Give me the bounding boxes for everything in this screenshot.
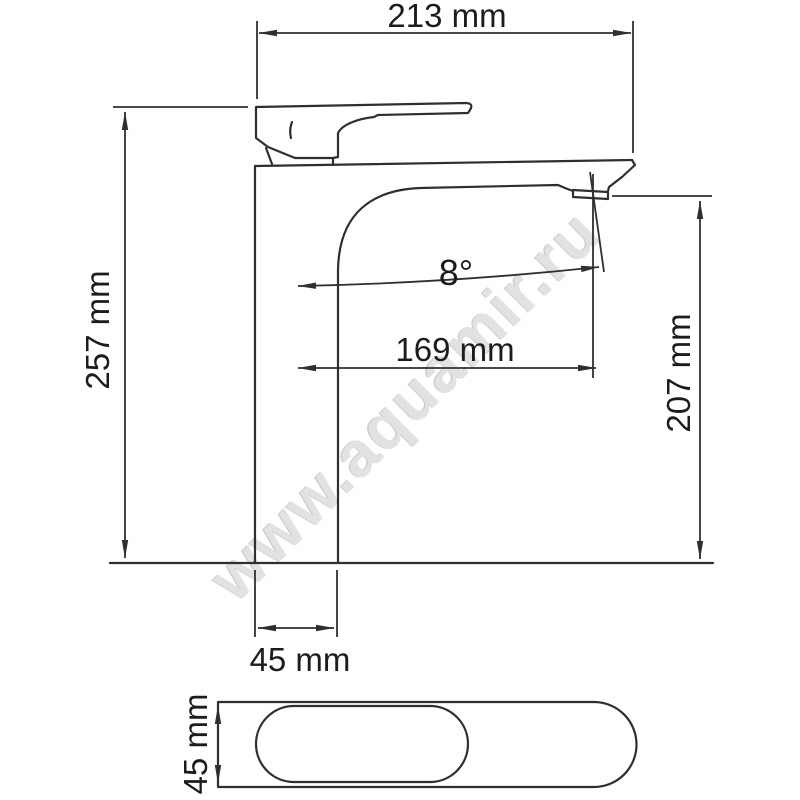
spout-underside	[420, 185, 573, 191]
dimension-label-spout-angle: 8°	[439, 252, 473, 293]
handle-crease-left	[266, 148, 272, 164]
dimension-outlet-height: 207 mm	[612, 196, 712, 559]
faucet-dimension-drawing: www.aquamir.ru	[0, 0, 800, 800]
aerator-outlet	[573, 190, 608, 199]
dimension-top-width: 213 mm	[257, 0, 633, 153]
dimension-annotations: 213 mm 257 mm 8° 169 mm	[79, 0, 712, 794]
dimension-label-top-width: 213 mm	[387, 0, 506, 34]
base-outer-outline	[218, 702, 637, 787]
handle-crease-front	[290, 122, 292, 138]
dimension-label-base-width: 45 mm	[177, 694, 214, 795]
dimension-overall-height: 257 mm	[79, 107, 248, 558]
base-inner-outline	[256, 706, 468, 782]
dimension-label-overall-height: 257 mm	[79, 270, 116, 389]
body-top-surface	[255, 160, 632, 166]
technical-drawing-canvas: 213 mm 257 mm 8° 169 mm	[0, 0, 800, 800]
body-right-edge	[338, 188, 420, 563]
handle-lever-outline	[256, 103, 471, 158]
dimension-base-width: 45 mm	[177, 694, 218, 795]
spout-end-profile	[608, 160, 635, 191]
dimension-body-width: 45 mm	[250, 570, 351, 678]
dimension-label-outlet-height: 207 mm	[660, 313, 697, 432]
dimension-label-spout-reach: 169 mm	[395, 331, 514, 368]
base-top-view	[218, 702, 637, 787]
dimension-label-body-width: 45 mm	[250, 641, 351, 678]
